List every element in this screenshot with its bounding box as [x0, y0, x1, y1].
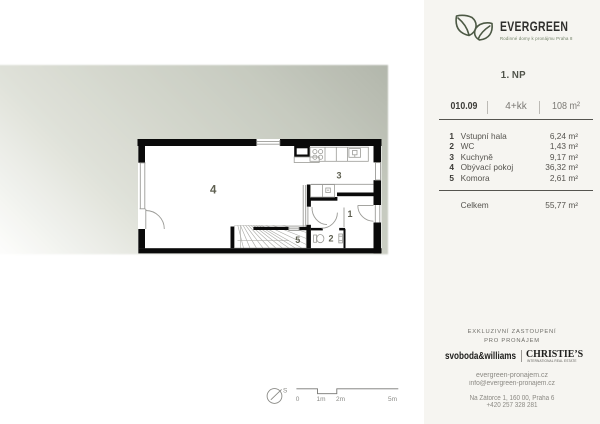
svg-text:3: 3	[336, 171, 341, 181]
svg-text:5: 5	[295, 235, 300, 245]
svg-text:0: 0	[296, 396, 300, 403]
svg-text:5m: 5m	[388, 396, 397, 403]
svg-text:4: 4	[210, 185, 217, 197]
svg-text:1: 1	[347, 209, 352, 219]
svg-text:2m: 2m	[336, 396, 345, 403]
svg-text:S: S	[283, 388, 288, 395]
svg-text:1m: 1m	[316, 396, 325, 403]
svg-text:2: 2	[328, 234, 333, 244]
